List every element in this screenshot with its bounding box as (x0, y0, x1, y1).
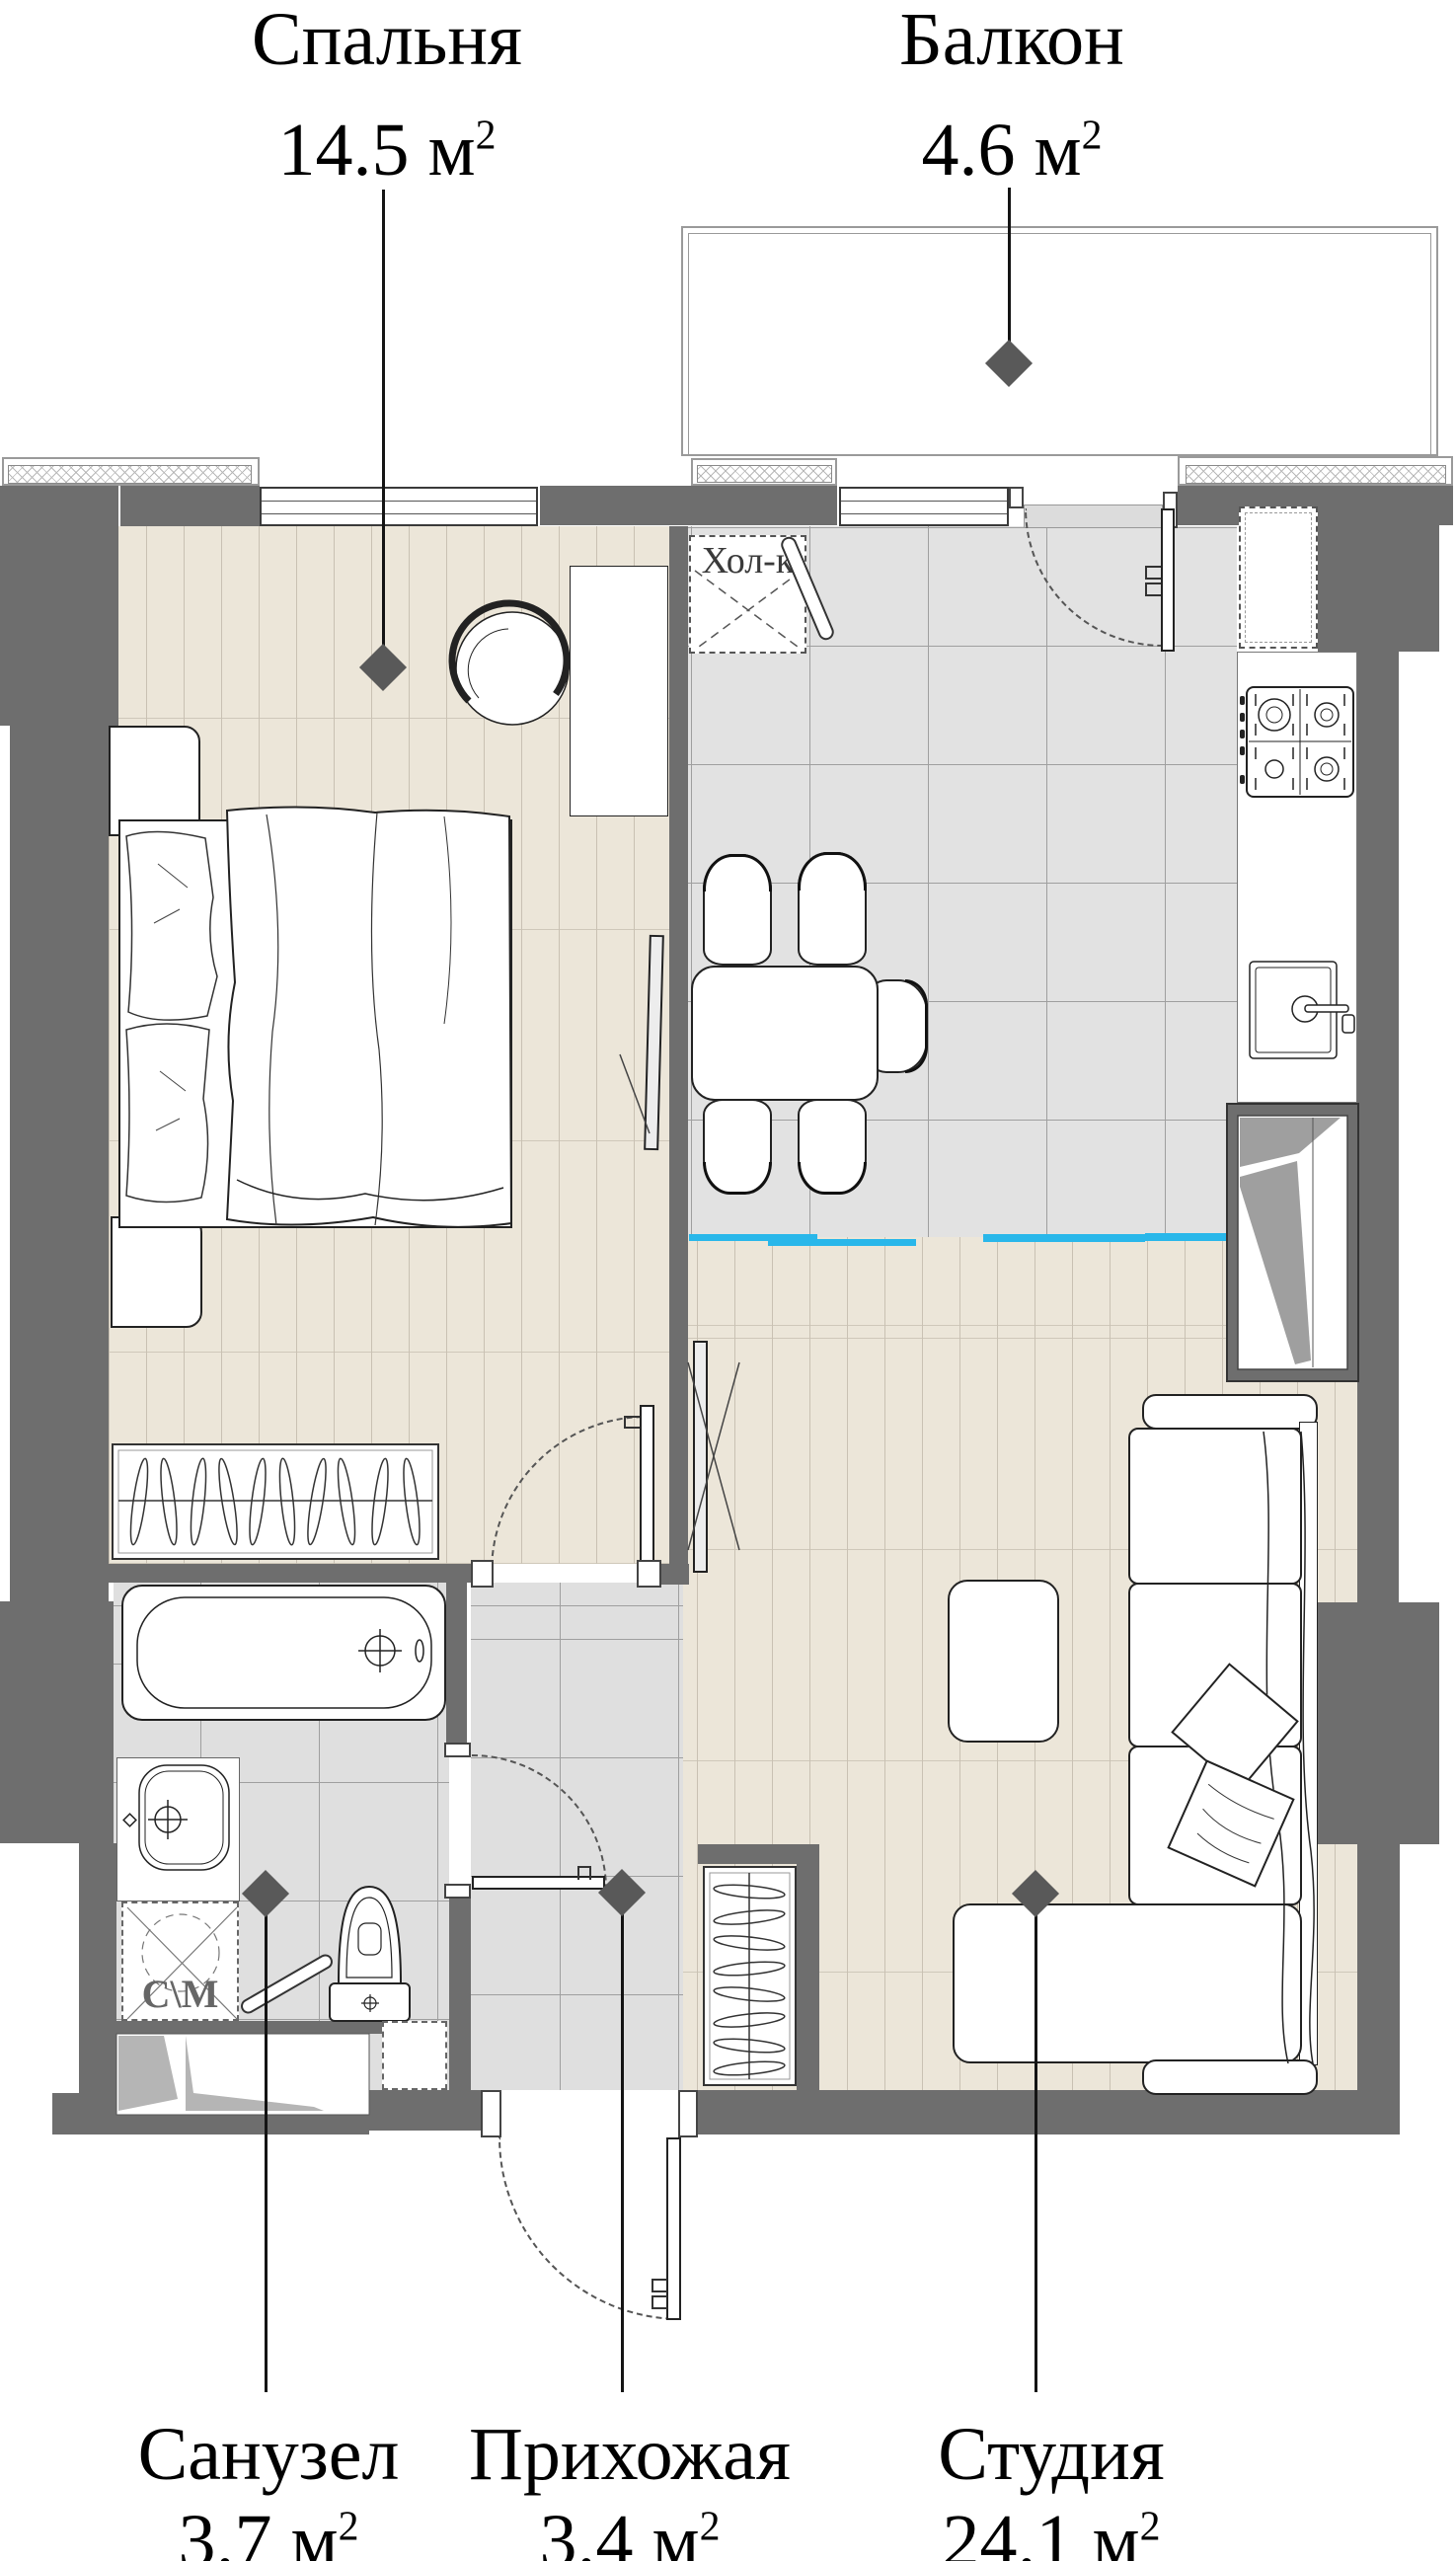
dining-table (691, 966, 879, 1101)
wall-segment (120, 486, 260, 526)
door-jamb (678, 2090, 698, 2137)
window-studio (1186, 465, 1446, 484)
wall-segment (0, 1601, 114, 1843)
dining-chair (703, 854, 772, 966)
coat-rack (703, 1866, 797, 2086)
leader-line-bedroom (382, 190, 385, 667)
balcony-door-handle (1145, 582, 1161, 596)
label-bedroom: Спальня 14.5 м2 (209, 2, 565, 188)
wall-segment (1318, 1602, 1439, 1844)
bedroom-door-handle (624, 1416, 640, 1429)
kitchen-zone-line (768, 1234, 817, 1246)
wall-segment (10, 726, 109, 1601)
kitchen-zone-line (817, 1239, 916, 1246)
room-area: 4.6 м2 (834, 113, 1189, 188)
desk (570, 566, 668, 816)
balcony-outline-inner (688, 233, 1431, 454)
balcony-door-leaf (1161, 508, 1175, 652)
wall-segment (797, 1864, 819, 2091)
washing-machine-label: С\М (123, 1971, 237, 2017)
window-kitchen (697, 465, 832, 483)
kitchen-zone-line (983, 1234, 1145, 1242)
wall-segment (698, 2090, 1400, 2134)
nightstand (111, 1216, 202, 1328)
leader-line-studio (1035, 1905, 1037, 2392)
wall-segment (1357, 652, 1399, 1602)
floor-hatch (382, 2021, 447, 2090)
door-jamb (481, 2090, 501, 2137)
wall-segment (698, 1844, 819, 1864)
balcony-door-handle (1145, 566, 1161, 580)
wall-segment (79, 1843, 116, 2093)
coffee-table (948, 1580, 1059, 1743)
balcony-outline (681, 226, 1438, 456)
kitchen-sink (1249, 961, 1338, 1059)
dining-chair (798, 1099, 867, 1195)
wall-segment (446, 1583, 467, 1745)
kitchen-zone-line (1145, 1233, 1226, 1241)
wall-segment (116, 2115, 369, 2134)
dining-chair (703, 1099, 772, 1195)
wardrobe-hangers (112, 1443, 439, 1560)
wall-segment (540, 486, 837, 525)
washbasin (138, 1764, 230, 1871)
room-area: 14.5 м2 (209, 113, 565, 188)
toilet (329, 1884, 412, 2023)
armchair (449, 607, 575, 731)
window-bedroom (8, 465, 252, 484)
wall-segment (1357, 1844, 1400, 2095)
leader-line-bathroom (265, 1901, 268, 2392)
wall-segment (369, 2090, 481, 2131)
dining-chair (798, 852, 867, 966)
washing-machine: С\М (121, 1901, 239, 2021)
wall-segment (1439, 486, 1453, 525)
bed (118, 805, 513, 1229)
wall-segment (449, 1884, 471, 2093)
door-jamb (444, 1884, 471, 1899)
bathtub (121, 1585, 446, 1721)
tv-studio-bracket (686, 1353, 743, 1560)
door-jamb (444, 1743, 471, 1757)
floor-plan: Хол-к (0, 0, 1456, 2561)
vent-duct (1239, 506, 1318, 649)
window-band-kitchen-balcony (839, 487, 1009, 526)
wall-segment (52, 2093, 118, 2134)
wall-segment (109, 1564, 494, 1583)
entry-door-handle (651, 2279, 667, 2292)
wall-segment (1318, 486, 1439, 652)
label-balcony: Балкон 4.6 м2 (834, 2, 1189, 188)
room-name: Спальня (209, 2, 565, 77)
entry-door-handle (651, 2295, 667, 2309)
kitchen-zone-line (689, 1234, 768, 1241)
door-jamb (471, 1560, 494, 1588)
tv-bedroom-bracket (617, 1047, 656, 1140)
balcony-door-jamb (1009, 487, 1024, 508)
label-hallway: Прихожая 3.4 м2 (452, 2417, 807, 2561)
label-bathroom: Санузел 3.7 м2 (91, 2417, 446, 2561)
door-jamb (637, 1560, 661, 1588)
room-area: 24.1 м2 (874, 2504, 1229, 2561)
sofa-armrest (1142, 1394, 1318, 1430)
entry-door-leaf (666, 2137, 681, 2320)
room-name: Балкон (834, 2, 1189, 77)
room-area: 3.4 м2 (452, 2504, 807, 2561)
room-name: Прихожая (452, 2417, 807, 2492)
bedroom-door-leaf (640, 1405, 654, 1564)
room-area: 3.7 м2 (91, 2504, 446, 2561)
entry-door-swing (498, 2137, 681, 2320)
wall-segment (0, 486, 118, 726)
bathroom-door-handle (577, 1866, 591, 1880)
plinth-shading (116, 2034, 369, 2115)
window-band-bedroom-balcony (260, 487, 538, 526)
label-studio: Студия 24.1 м2 (874, 2417, 1229, 2561)
stove (1246, 686, 1354, 798)
room-name: Санузел (91, 2417, 446, 2492)
tall-cabinet (1238, 1116, 1347, 1369)
room-name: Студия (874, 2417, 1229, 2492)
leader-line-hallway (621, 1901, 624, 2392)
leader-line-balcony (1008, 188, 1011, 363)
